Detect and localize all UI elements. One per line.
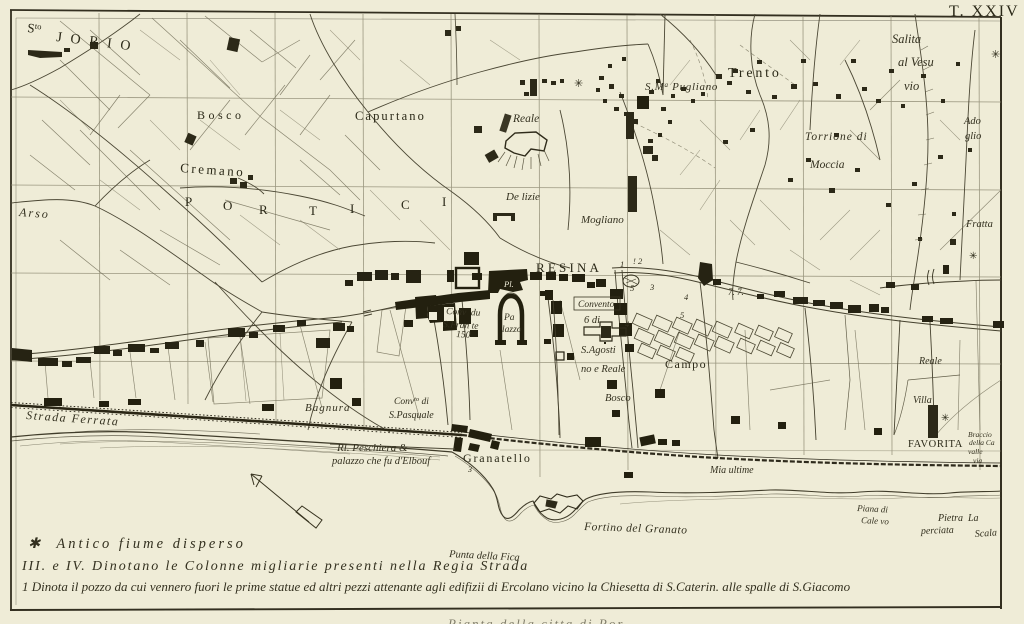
svg-text:Mogliano: Mogliano <box>580 214 624 226</box>
svg-text:via: via <box>973 456 982 465</box>
svg-text:C: C <box>401 197 410 212</box>
svg-text:De lizie: De lizie <box>505 191 540 203</box>
svg-text:Fratta: Fratta <box>965 219 993 230</box>
svg-text:Convto di: Convto di <box>394 396 429 407</box>
svg-text:no e Reale: no e Reale <box>581 364 626 375</box>
svg-text:5: 5 <box>680 310 684 320</box>
svg-text:della Ca: della Ca <box>969 438 995 447</box>
svg-text:Bosco: Bosco <box>197 108 245 122</box>
svg-text:Campo: Campo <box>665 357 707 371</box>
svg-text:S.Pasquale: S.Pasquale <box>389 410 434 421</box>
svg-text:al Vesu: al Vesu <box>898 55 934 69</box>
svg-text:FAVORITA: FAVORITA <box>908 439 963 450</box>
svg-text:I: I <box>350 201 354 216</box>
svg-text:3: 3 <box>649 282 654 292</box>
svg-text:P: P <box>185 194 192 209</box>
svg-text:T: T <box>309 203 317 218</box>
svg-text:Arso: Arso <box>18 205 51 221</box>
svg-text:O: O <box>223 198 232 213</box>
svg-text:lazzo: lazzo <box>502 325 522 335</box>
svg-text:I: I <box>442 194 446 209</box>
svg-text:✳: ✳ <box>969 251 977 262</box>
svg-text:Cale vo: Cale vo <box>861 515 890 526</box>
svg-text:Villa: Villa <box>913 395 932 406</box>
svg-text:1: 1 <box>620 259 624 269</box>
svg-text:glio: glio <box>965 131 981 142</box>
svg-text:5: 5 <box>630 283 634 293</box>
svg-text:✳: ✳ <box>991 49 1000 61</box>
svg-text:Piana di: Piana di <box>856 503 889 515</box>
svg-text:perciata: perciata <box>920 525 954 537</box>
svg-text:S.Ma Pugliano: S.Ma Pugliano <box>645 81 718 93</box>
svg-text:Ado: Ado <box>963 116 981 127</box>
svg-text:150: 150 <box>456 330 471 341</box>
svg-text:3: 3 <box>467 465 472 474</box>
svg-text:Convento: Convento <box>578 300 615 310</box>
svg-text:Pianta della citta di Por: Pianta della citta di Por <box>447 616 624 624</box>
svg-text:RESINA: RESINA <box>536 260 602 275</box>
svg-text:Torrione di: Torrione di <box>805 131 868 143</box>
svg-text:Granatello: Granatello <box>463 451 532 465</box>
svg-text:R: R <box>259 202 268 217</box>
svg-text:palazzo che fu d'Elbouf: palazzo che fu d'Elbouf <box>331 456 432 467</box>
svg-text:valle: valle <box>968 447 983 456</box>
svg-text:Bosco: Bosco <box>605 393 631 404</box>
svg-text:Pa: Pa <box>503 313 515 323</box>
svg-text:Trento: Trento <box>728 66 782 81</box>
svg-text:S.Agosti: S.Agosti <box>581 345 616 356</box>
svg-text:Pietra La: Pietra La <box>937 513 979 524</box>
svg-text:Rl. Peschiera &: Rl. Peschiera & <box>336 442 408 454</box>
svg-text:Reale: Reale <box>512 113 539 125</box>
svg-text:✱ Antico fiume disperso: ✱ Antico fiume disperso <box>28 536 246 552</box>
svg-text:Scala: Scala <box>974 527 997 540</box>
svg-text:✳: ✳ <box>574 78 583 90</box>
svg-text:6 di: 6 di <box>584 315 600 326</box>
svg-text:Mia ultime: Mia ultime <box>709 465 754 476</box>
svg-text:III. e IV. Dinotano le Colonne: III. e IV. Dinotano le Colonne migliarie… <box>21 559 529 574</box>
svg-text:Salita: Salita <box>892 32 921 46</box>
svg-text:Conv du: Conv du <box>446 307 481 319</box>
svg-text:Bagnura: Bagnura <box>305 402 351 414</box>
svg-text:1 Dinota il pozzo da cui venne: 1 Dinota il pozzo da cui vennero fuori l… <box>22 579 851 594</box>
svg-text:Moccia: Moccia <box>809 159 845 171</box>
svg-text:✳: ✳ <box>941 413 949 424</box>
svg-text:Reale: Reale <box>918 356 942 367</box>
svg-text:7. 7.: 7. 7. <box>728 287 744 297</box>
svg-text:vio: vio <box>904 79 919 93</box>
svg-text:Capurtano: Capurtano <box>355 109 426 123</box>
svg-text:Pl.: Pl. <box>503 279 514 289</box>
svg-text:! 2: ! 2 <box>633 256 643 266</box>
